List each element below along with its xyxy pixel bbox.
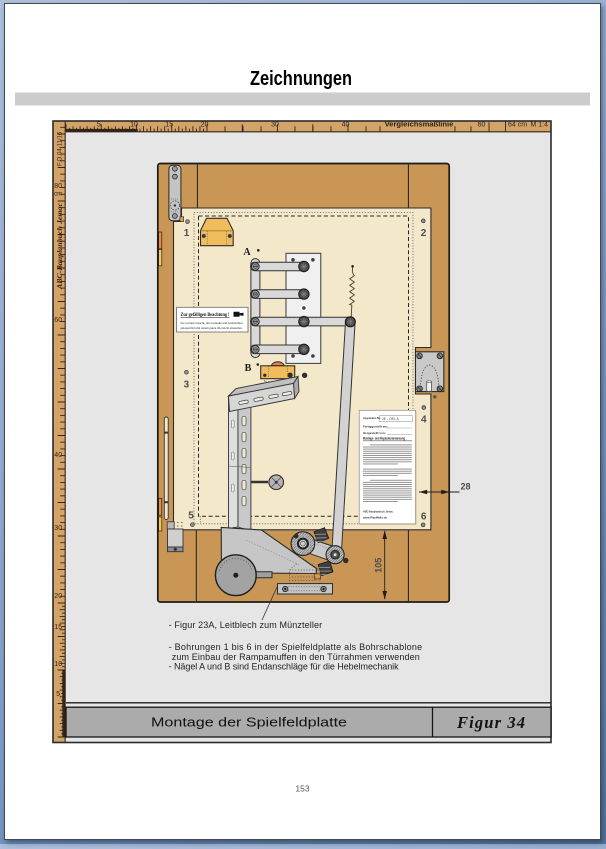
- svg-text:ABC-Bauplanbuch Jemac: ABC-Bauplanbuch Jemac: [56, 203, 64, 290]
- svg-text:- Nägel A und B sind Endanschl: - Nägel A und B sind Endanschläge für di…: [169, 661, 400, 671]
- svg-text:A: A: [243, 247, 251, 258]
- svg-text:20: 20: [201, 121, 209, 128]
- svg-text:1: 1: [184, 228, 190, 239]
- svg-text:105: 105: [374, 558, 384, 573]
- svg-text:Montage der Spielfeldplatte: Montage der Spielfeldplatte: [151, 715, 347, 730]
- svg-text:Zeichnungen: Zeichnungen: [250, 67, 352, 90]
- svg-text:Montage- und Reparaturanweisun: Montage- und Reparaturanweisung: [363, 436, 405, 440]
- svg-text:15: 15: [54, 624, 62, 631]
- svg-text:2: 2: [421, 228, 427, 239]
- svg-text:60: 60: [54, 317, 62, 324]
- svg-text:30: 30: [271, 121, 279, 128]
- svg-text:- Bohrungen 1 bis 6 in der Spi: - Bohrungen 1 bis 6 in der Spielfeldplat…: [169, 642, 423, 652]
- svg-text:60: 60: [478, 121, 486, 128]
- svg-text:F.O.04-11/16: F.O.04-11/16: [58, 131, 64, 166]
- svg-text:40: 40: [54, 452, 62, 459]
- svg-text:B: B: [245, 363, 252, 374]
- svg-text:gelegentlich mit einem guten Ö: gelegentlich mit einem guten Öle leicht …: [181, 325, 243, 330]
- svg-text:5: 5: [188, 511, 194, 522]
- svg-text:153: 153: [295, 784, 309, 794]
- svg-text:15: 15: [165, 121, 173, 128]
- svg-text:- Figur 23A, Leitblech zum Mün: - Figur 23A, Leitblech zum Münzteller: [169, 620, 323, 630]
- svg-text:ABC-Bauplanbuch Jemac: ABC-Bauplanbuch Jemac: [363, 510, 393, 514]
- svg-text:cm: cm: [54, 191, 62, 198]
- svg-text:Apparate-Nr.: Apparate-Nr.: [363, 416, 381, 420]
- svg-text:Zur gefälligen Beachtung !: Zur gefälligen Beachtung !: [181, 313, 230, 318]
- svg-text:64 cm: 64 cm: [508, 121, 527, 128]
- svg-text:Figur 34: Figur 34: [456, 713, 525, 732]
- svg-text:www.PlayWalls.de: www.PlayWalls.de: [362, 515, 387, 519]
- svg-text:JE - OE1 A: JE - OE1 A: [382, 417, 400, 421]
- svg-text:10: 10: [130, 121, 138, 128]
- svg-text:80: 80: [54, 183, 62, 190]
- svg-text:30: 30: [54, 525, 62, 532]
- svg-text:20: 20: [54, 593, 62, 600]
- svg-text:40: 40: [342, 121, 350, 128]
- svg-text:Hergestellt von:: Hergestellt von:: [363, 431, 386, 435]
- svg-text:6: 6: [421, 512, 427, 523]
- svg-text:5: 5: [56, 691, 60, 698]
- svg-text:4: 4: [421, 415, 427, 426]
- svg-text:28: 28: [461, 482, 471, 492]
- svg-text:M 1:4: M 1:4: [531, 121, 549, 128]
- svg-text:zum Einbau der Rampamuffen in: zum Einbau der Rampamuffen in den Türrah…: [172, 652, 420, 662]
- svg-text:3: 3: [184, 380, 190, 391]
- svg-text:10: 10: [54, 661, 62, 668]
- svg-text:5: 5: [97, 121, 101, 128]
- svg-text:Fertiggestellt am:: Fertiggestellt am:: [363, 424, 388, 428]
